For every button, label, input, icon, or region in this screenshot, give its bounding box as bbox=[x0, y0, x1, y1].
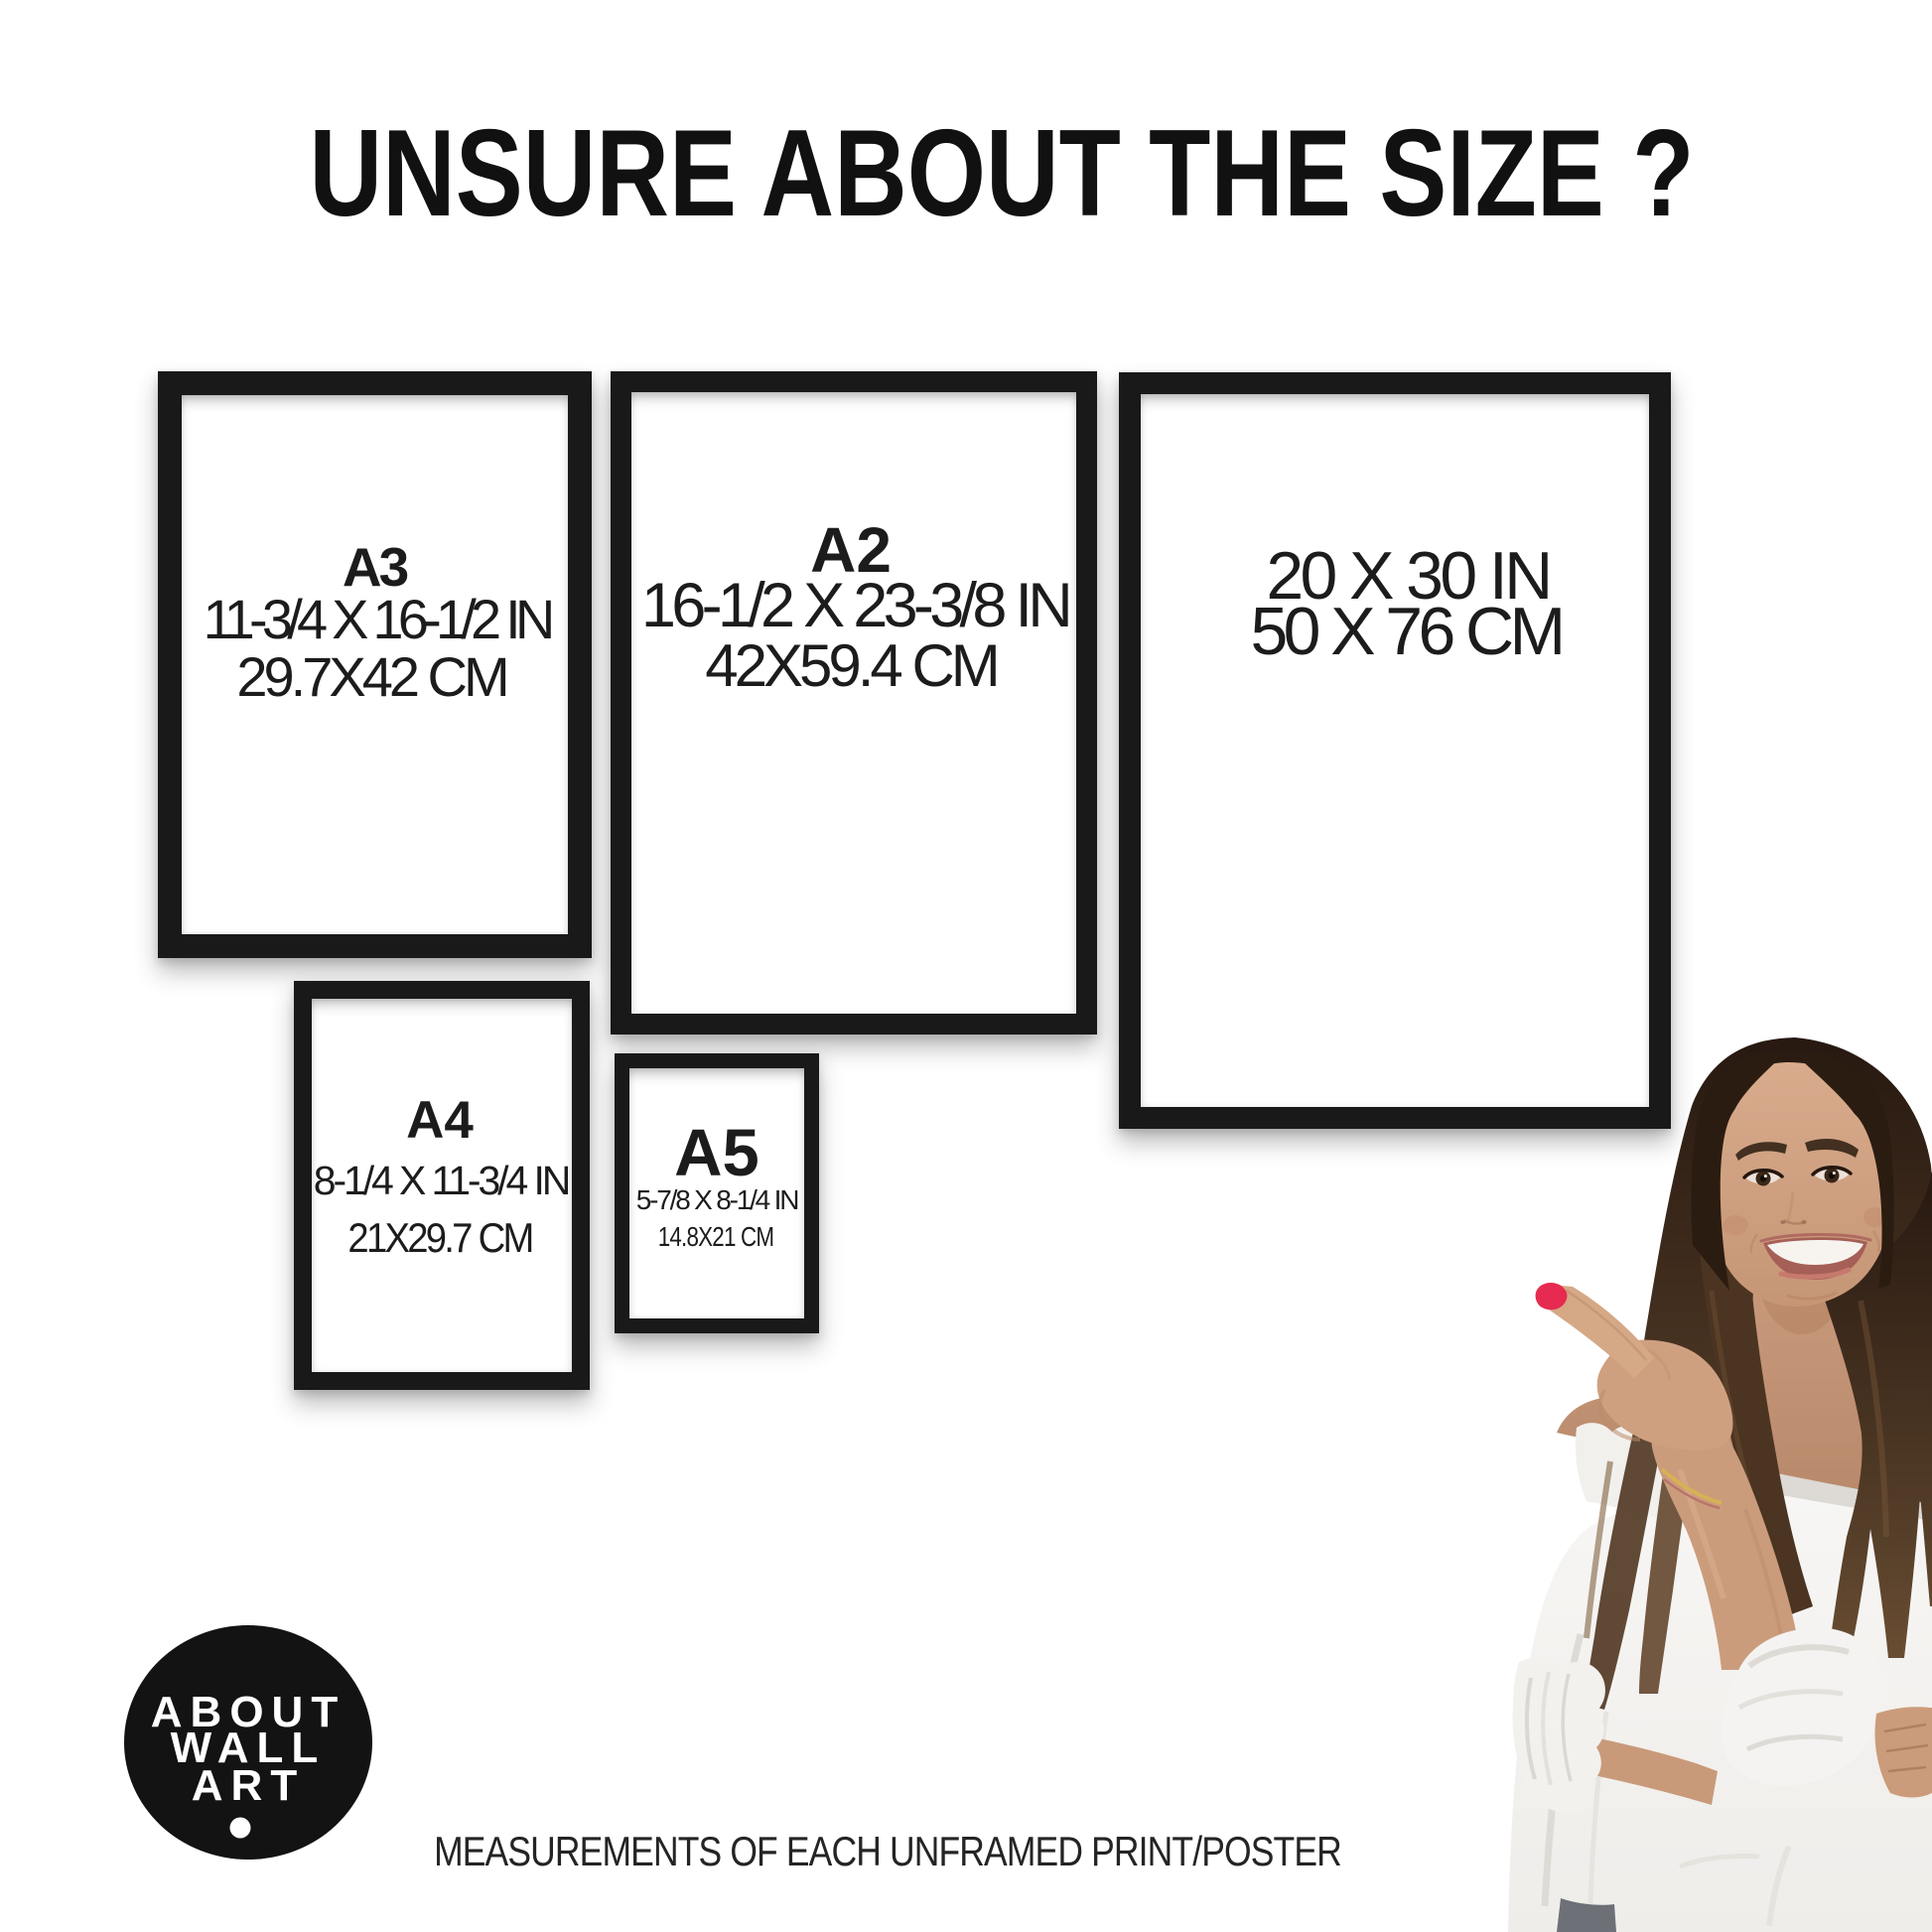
svg-text:ART: ART bbox=[192, 1761, 305, 1810]
